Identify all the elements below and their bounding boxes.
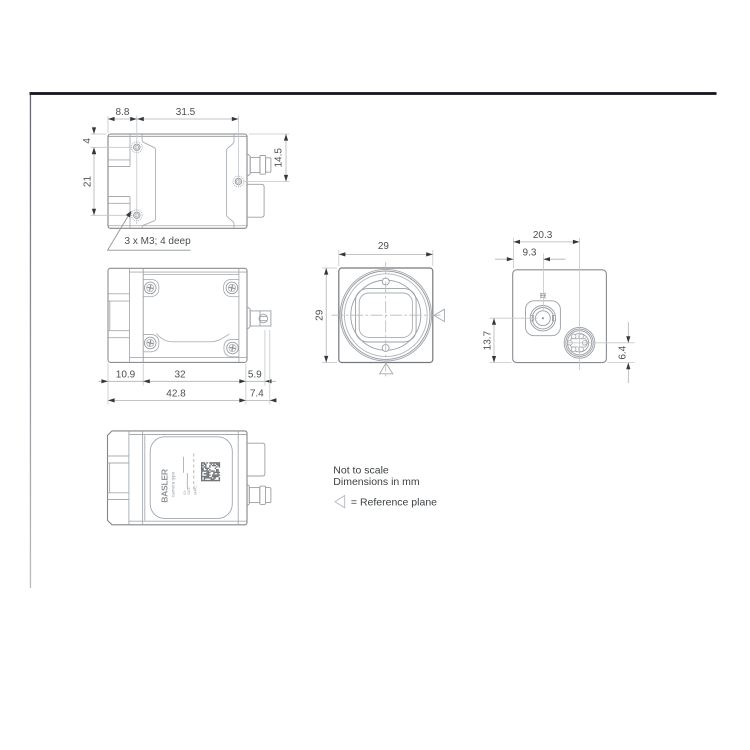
svg-text:10.9: 10.9: [116, 370, 136, 381]
svg-text:MAC:: MAC:: [193, 485, 198, 495]
svg-text:8.8: 8.8: [116, 107, 130, 118]
svg-text:29: 29: [378, 241, 390, 252]
svg-text:= Reference plane: = Reference plane: [351, 496, 437, 508]
svg-text:6.4: 6.4: [618, 345, 629, 359]
svg-text:32: 32: [174, 370, 186, 381]
svg-text:3 x M3; 4 deep: 3 x M3; 4 deep: [125, 236, 192, 247]
svg-text:S/N:: S/N:: [186, 487, 191, 495]
svg-text:7.4: 7.4: [250, 389, 264, 400]
svg-text:Dimensions in mm: Dimensions in mm: [333, 476, 420, 488]
svg-text:BASLER: BASLER: [159, 468, 169, 503]
svg-text:4: 4: [82, 138, 93, 144]
svg-text:42.8: 42.8: [166, 389, 186, 400]
svg-text:31.5: 31.5: [176, 107, 196, 118]
svg-text:14.5: 14.5: [274, 148, 285, 168]
svg-text:9.3: 9.3: [523, 247, 537, 258]
svg-text:20.3: 20.3: [533, 230, 553, 241]
svg-text:21: 21: [83, 176, 94, 188]
svg-text:camera type: camera type: [170, 471, 175, 497]
svg-text:5.9: 5.9: [248, 370, 262, 381]
svg-text:13.7: 13.7: [482, 330, 493, 350]
svg-text:Not to scale: Not to scale: [333, 465, 389, 477]
svg-text:29: 29: [314, 309, 325, 321]
